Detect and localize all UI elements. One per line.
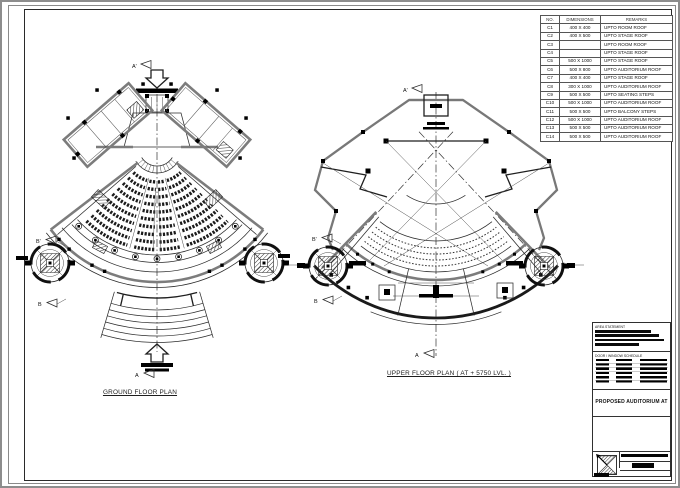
- schedule-cell: C9: [541, 91, 560, 99]
- ground-floor-plan: A'AB'B: [16, 61, 290, 380]
- schedule-row: C6500 X 800UPTO AUDITORIUM ROOF: [541, 66, 673, 74]
- upper-floor-plan-label: UPPER FLOOR PLAN ( AT + 5750 LVL. ): [375, 370, 523, 377]
- schedule-cell: C2: [541, 32, 560, 40]
- schedule-cell: [560, 49, 601, 57]
- section-marker-label: B': [36, 239, 41, 245]
- redacted-text-bar: [594, 473, 609, 477]
- schedule-cell: 400 X 500: [560, 32, 601, 40]
- drawing-sheet: A'AB'B A'AB'B NO. DIMENSIONS REMARKS C14…: [0, 0, 680, 488]
- schedule-cell: [560, 41, 601, 49]
- schedule-cell: 500 X 500: [560, 125, 601, 133]
- schedule-row: C2400 X 500UPTO STAGE ROOF: [541, 32, 673, 40]
- schedule-cell: UPTO SEATING STEPS: [601, 91, 673, 99]
- schedule-row: C4UPTO STAGE ROOF: [541, 49, 673, 57]
- schedule-cell: UPTO AUDITORIUM ROOF: [601, 99, 673, 107]
- notes-section: [593, 417, 670, 452]
- project-title-section: PROPOSED AUDITORIUM AT: [593, 390, 670, 417]
- schedule-row: C1400 X 400UPTO ROOM ROOF: [541, 24, 673, 32]
- schedule-cell: C13: [541, 125, 560, 133]
- schedule-cell: 500 X 1000: [560, 116, 601, 124]
- schedule-row: C5500 X 1000UPTO STAGE ROOF: [541, 57, 673, 65]
- schedule-cell: 500 X 500: [560, 91, 601, 99]
- schedule-cell: UPTO AUDITORIUM ROOF: [601, 116, 673, 124]
- schedule-cell: C14: [541, 133, 560, 141]
- schedule-header-no: NO.: [541, 16, 560, 24]
- schedule-row: C12500 X 1000UPTO AUDITORIUM ROOF: [541, 116, 673, 124]
- door-window-schedule-grid: [595, 359, 668, 384]
- schedule-cell: C12: [541, 116, 560, 124]
- title-block: AREA STATEMENT DOOR / WINDOW SCHEDULE PR…: [592, 322, 671, 477]
- schedule-cell: 400 X 400: [560, 24, 601, 32]
- schedule-cell: 500 X 1000: [560, 99, 601, 107]
- schedule-row: C7400 X 400UPTO STAGE ROOF: [541, 74, 673, 82]
- section-marker-label: A': [132, 64, 137, 70]
- schedule-header-remarks: REMARKS: [601, 16, 673, 24]
- section-marker-label: A: [415, 353, 419, 359]
- schedule-cell: C11: [541, 108, 560, 116]
- schedule-cell: C4: [541, 49, 560, 57]
- schedule-header-dimensions: DIMENSIONS: [560, 16, 601, 24]
- schedule-cell: UPTO ROOM ROOF: [601, 41, 673, 49]
- schedule-cell: UPTO AUDITORIUM ROOF: [601, 83, 673, 91]
- redacted-text-bar: [595, 339, 664, 342]
- area-statement-label: AREA STATEMENT: [593, 323, 670, 329]
- schedule-cell: UPTO BALCONY STEPS: [601, 108, 673, 116]
- schedule-cell: C3: [541, 41, 560, 49]
- schedule-row: C13500 X 500UPTO AUDITORIUM ROOF: [541, 125, 673, 133]
- redacted-text-bar: [632, 463, 654, 468]
- schedule-cell: UPTO STAGE ROOF: [601, 74, 673, 82]
- divider: [620, 470, 670, 471]
- redacted-column: [596, 359, 609, 384]
- column-schedule-table: NO. DIMENSIONS REMARKS C1400 X 400UPTO R…: [540, 15, 673, 142]
- section-marker-label: B: [314, 299, 318, 305]
- redacted-text-bar: [595, 330, 651, 333]
- schedule-cell: 500 X 800: [560, 66, 601, 74]
- schedule-cell: UPTO STAGE ROOF: [601, 49, 673, 57]
- schedule-cell: C7: [541, 74, 560, 82]
- schedule-row: C14500 X 500UPTO AUDITORIUM ROOF: [541, 133, 673, 141]
- schedule-cell: 500 X 500: [560, 133, 601, 141]
- stage-wing-block: [160, 81, 251, 168]
- schedule-cell: UPTO ROOM ROOF: [601, 24, 673, 32]
- schedule-cell: 300 X 1000: [560, 83, 601, 91]
- redacted-text-bar: [595, 334, 659, 337]
- schedule-cell: 400 X 400: [560, 74, 601, 82]
- door-window-schedule-section: DOOR / WINDOW SCHEDULE: [593, 352, 670, 390]
- schedule-cell: UPTO STAGE ROOF: [601, 32, 673, 40]
- divider: [620, 461, 670, 462]
- section-marker-label: A': [403, 88, 408, 94]
- redacted-text-bar: [621, 454, 668, 457]
- ground-floor-plan-label: GROUND FLOOR PLAN: [88, 389, 192, 396]
- schedule-header-row: NO. DIMENSIONS REMARKS: [541, 16, 673, 24]
- schedule-cell: 500 X 1000: [560, 57, 601, 65]
- redacted-column: [616, 359, 632, 384]
- schedule-row: C8300 X 1000UPTO AUDITORIUM ROOF: [541, 83, 673, 91]
- schedule-cell: UPTO STAGE ROOF: [601, 57, 673, 65]
- door-window-schedule-label: DOOR / WINDOW SCHEDULE: [593, 352, 670, 358]
- schedule-cell: C5: [541, 57, 560, 65]
- schedule-row: C9500 X 500UPTO SEATING STEPS: [541, 91, 673, 99]
- schedule-cell: 500 X 500: [560, 108, 601, 116]
- stair-tower: [303, 247, 353, 285]
- schedule-cell: UPTO AUDITORIUM ROOF: [601, 66, 673, 74]
- schedule-cell: C10: [541, 99, 560, 107]
- section-marker-label: B: [38, 302, 42, 308]
- schedule-row: C11500 X 500UPTO BALCONY STEPS: [541, 108, 673, 116]
- schedule-row: C10500 X 1000UPTO AUDITORIUM ROOF: [541, 99, 673, 107]
- schedule-cell: C6: [541, 66, 560, 74]
- schedule-cell: C8: [541, 83, 560, 91]
- section-marker-label: A: [135, 373, 139, 379]
- redacted-text-bar: [595, 343, 639, 346]
- schedule-cell: C1: [541, 24, 560, 32]
- schedule-cell: UPTO AUDITORIUM ROOF: [601, 133, 673, 141]
- area-statement-section: AREA STATEMENT: [593, 323, 670, 352]
- redacted-column: [640, 359, 667, 384]
- signature-section: [593, 452, 670, 478]
- schedule-cell: UPTO AUDITORIUM ROOF: [601, 125, 673, 133]
- stair-tower: [519, 247, 569, 285]
- project-title: PROPOSED AUDITORIUM AT: [593, 399, 670, 405]
- stage-wing-block: [62, 82, 153, 169]
- section-marker-label: B': [312, 237, 317, 243]
- schedule-row: C3UPTO ROOM ROOF: [541, 41, 673, 49]
